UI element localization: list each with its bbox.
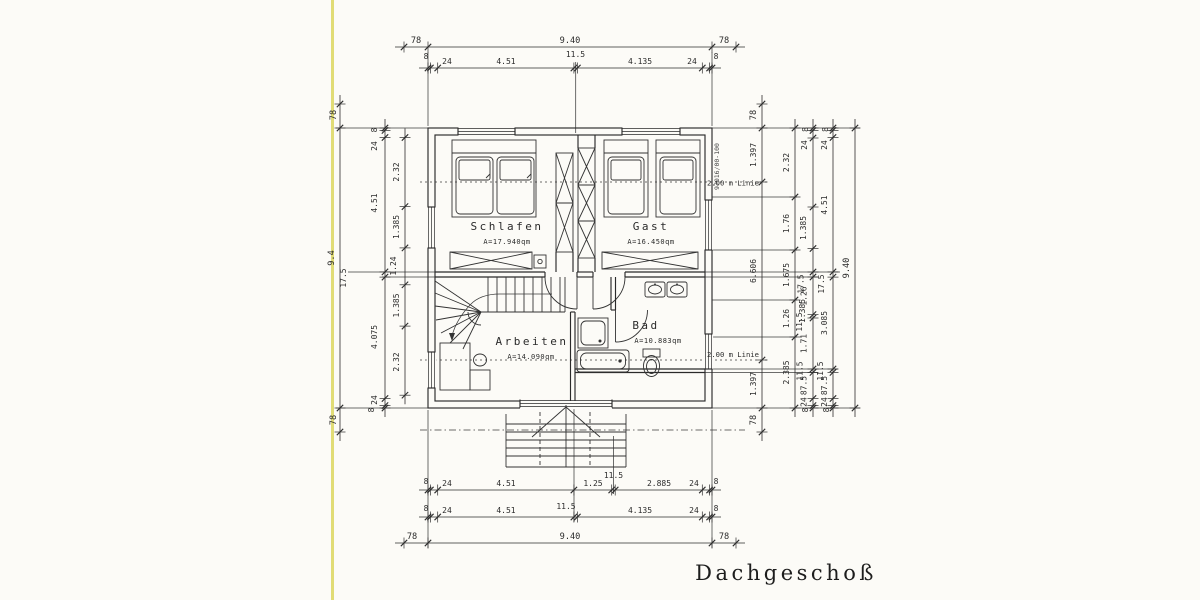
dim-label: 78 (719, 532, 729, 542)
room-labels: Schlafen A=17.940qm Gast A=16.450qm Arbe… (471, 220, 682, 361)
dim-label: 24 (442, 506, 452, 515)
dim-label: 2.32 (392, 352, 401, 371)
dim-label: 17.5 (817, 274, 826, 293)
dim-label: 9.4 (327, 250, 337, 266)
dim-label: 24 (442, 479, 452, 488)
dim-label: 8 (714, 477, 719, 486)
chimney-shaft (556, 135, 595, 272)
scanned-floorplan-page: 78 9.40 78 8 24 4.51 11.5 4.135 24 8 8 2… (0, 0, 1200, 600)
dim-label: 2.32 (392, 162, 401, 181)
door-schlafen-swing (545, 277, 577, 309)
closet-schlafen (450, 252, 546, 269)
drawing-title: Dachgeschoß (695, 561, 877, 585)
dim-chain-left-detail: 8 24 4.51 17.5 4.075 24 8 (339, 119, 391, 417)
dim-chain-right-total: 9.40 (842, 119, 861, 417)
window-schlafen-left (427, 207, 437, 248)
dim-label: 1.397 (749, 372, 758, 396)
dim-chain-bottom-total: 78 9.40 78 (395, 532, 745, 549)
dim-label: 78 (749, 110, 759, 120)
reference-lines (336, 52, 860, 548)
dim-chain-right-knee: 78 1.397 6.606 1.397 78 (749, 95, 768, 441)
room-name-gast: Gast (633, 220, 670, 233)
dim-label: 78 (411, 36, 421, 46)
middle-wall (435, 272, 705, 277)
dim-label: 1.675 (782, 263, 791, 287)
dim-label: 8 (424, 52, 429, 61)
dim-label: 2.885 (647, 479, 671, 488)
dim-label: 4.075 (370, 325, 379, 349)
dim-label: 24 (800, 397, 809, 407)
dim-label: 78 (407, 532, 417, 542)
dim-label: 1.25 (583, 479, 602, 488)
dim-label: 24 (689, 479, 699, 488)
dim-label: 1.24 (389, 256, 398, 275)
dim-chain-bottom-row1: 8 24 4.51 1.25 11.5 2.885 24 8 (419, 471, 721, 496)
dim-label: 4.51 (820, 195, 829, 214)
sink-left (645, 282, 665, 297)
dim-label: 78 (749, 415, 759, 425)
dim-chain-bottom-row2: 8 24 4.51 11.5 4.135 24 8 (419, 502, 721, 523)
window-gast-top (622, 127, 680, 137)
room-area-gast: A=16.450qm (627, 238, 674, 246)
dim-label: 11.5 (795, 312, 804, 331)
dim-chain-left-total: 78 9.4 78 (327, 95, 346, 441)
bathtub (577, 350, 629, 372)
closet-gast (602, 252, 698, 269)
dim-label: 1.385 (392, 215, 401, 239)
shower (578, 318, 608, 348)
room-name-schlafen: Schlafen (471, 220, 544, 233)
window-schlafen-top (458, 127, 515, 137)
dim-label: 17.5 (339, 268, 348, 287)
height-line-annotations: 2.00 m Linie 2.00 m Linie 97016/00-100 (707, 143, 759, 359)
dim-chain-top-detail: 8 24 4.51 11.5 4.135 24 8 (419, 50, 721, 74)
dim-label: 4.51 (496, 57, 515, 66)
knee-height-label-bottom: 2.00 m Linie (707, 350, 759, 359)
dim-label: 1.385 (799, 216, 808, 240)
dim-label: 8 (714, 52, 719, 61)
dim-label: 4.135 (628, 57, 652, 66)
dim-label: 24 (800, 140, 809, 150)
dim-label: 11.5 (604, 471, 623, 480)
exterior-stairs (506, 405, 626, 467)
dim-label: 9.40 (560, 36, 581, 46)
dim-label: 4.51 (496, 479, 515, 488)
dim-label: 24 (820, 140, 829, 150)
dim-label: 11.5 (556, 502, 575, 511)
dim-label: 8 (367, 407, 376, 412)
dim-label: 24 (370, 141, 379, 151)
dim-label: 1.71 (800, 334, 809, 353)
room-area-bad: A=10.883qm (634, 337, 681, 345)
dim-label: 8 (714, 504, 719, 513)
room-name-arbeiten: Arbeiten (496, 335, 569, 348)
dim-label: 1.76 (782, 214, 791, 233)
room-area-arbeiten: A=14.090qm (507, 353, 554, 361)
floorplan-drawing: 78 9.40 78 8 24 4.51 11.5 4.135 24 8 8 2… (0, 0, 1200, 600)
dim-label: 78 (719, 36, 729, 46)
dim-label: 4.51 (370, 193, 379, 212)
dim-label: 6.606 (749, 259, 758, 283)
dim-chain-right-detail: 8 24 4.51 17.5 3.085 11.5 87.5 24 8 (816, 119, 839, 417)
dim-label: 4.51 (496, 506, 515, 515)
double-bed-schlafen (452, 140, 536, 217)
door-gast-swing (593, 277, 625, 309)
dim-label: 1.397 (749, 143, 758, 167)
dim-label: 2.385 (782, 360, 791, 384)
dim-label: 11.5 (566, 50, 585, 59)
dim-label: 1.385 (392, 293, 401, 317)
dim-label: 87.5 (820, 376, 829, 395)
dim-label: 9.40 (560, 532, 581, 542)
dim-label: 24 (689, 506, 699, 515)
dim-label: 24 (442, 57, 452, 66)
window-arbeiten-left (427, 352, 437, 388)
drawing-number: 97016/00-100 (713, 143, 721, 190)
dim-label: 24 (687, 57, 697, 66)
dim-label: 87.5 (800, 376, 809, 395)
room-name-bad: Bad (632, 319, 659, 332)
dim-label: 78 (329, 415, 339, 425)
dim-chain-left-inner: 2.32 1.385 1.24 1.385 2.32 (389, 129, 411, 405)
dim-label: 8 (370, 127, 379, 132)
window-gast-right (703, 200, 713, 250)
room-area-schlafen: A=17.940qm (483, 238, 530, 246)
dim-label: 2.32 (782, 153, 791, 172)
dim-label: 78 (329, 110, 339, 120)
sink-right (667, 282, 687, 297)
beds-gast (604, 140, 700, 217)
desk-arbeiten (440, 343, 490, 390)
dim-label: 24 (370, 395, 379, 405)
dim-label: 9.40 (842, 258, 852, 279)
dim-label: 4.135 (628, 506, 652, 515)
dim-label: 3.085 (820, 311, 829, 335)
dim-label: 1.26 (782, 309, 791, 328)
